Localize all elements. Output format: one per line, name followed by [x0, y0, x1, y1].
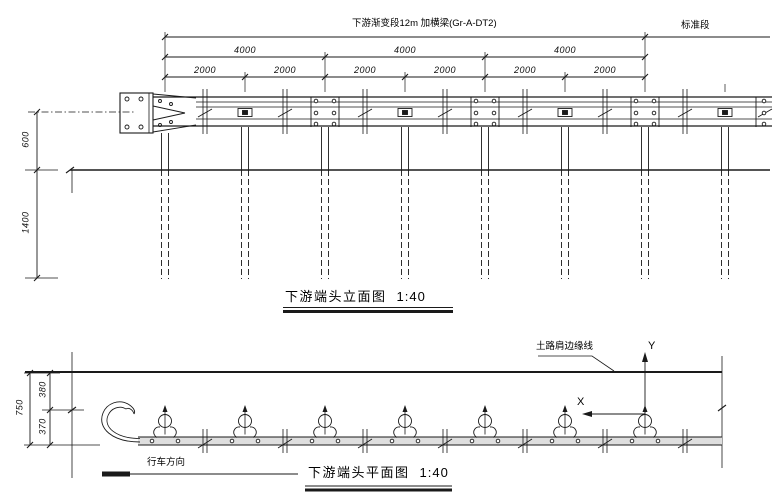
- dim-embed-depth: 1400: [22, 205, 31, 241]
- axis-y-label: Y: [648, 341, 655, 352]
- dim-2000-2: 2000: [274, 66, 296, 75]
- plan-title-underline: [305, 486, 452, 490]
- dim-2000-1: 2000: [194, 66, 216, 75]
- cad-drawing-sheet: 下游渐变段12m 加横梁(Gr-A-DT2) 标准段 4000 4000 400…: [0, 0, 780, 500]
- plan-title-text: 下游端头平面图: [308, 465, 410, 480]
- dim-2000-3: 2000: [354, 66, 376, 75]
- plan-title-scale: 1:40: [420, 465, 449, 480]
- plan-width-dimensions: [24, 370, 100, 448]
- dim-2000-5: 2000: [514, 66, 536, 75]
- terminal-hook-plan: [102, 402, 140, 442]
- dim-2000-6: 2000: [594, 66, 616, 75]
- elevation-title-underline: [283, 308, 453, 312]
- dim-2000-4: 2000: [434, 66, 456, 75]
- axis-y-arrowhead: [642, 352, 648, 362]
- rail-plan-band: [138, 437, 722, 445]
- elevation-view-title: 下游端头立面图1:40: [285, 290, 426, 303]
- posts-elevation: [162, 127, 729, 279]
- standard-section-label: 标准段: [681, 21, 710, 31]
- travel-direction-arrow: [102, 472, 298, 477]
- elevation-view: [25, 32, 772, 312]
- coordinate-axes: [582, 352, 648, 417]
- dim-upper-width: 380: [39, 375, 48, 405]
- dim-lower-width: 370: [39, 412, 48, 442]
- dim-total-width: 750: [16, 393, 25, 423]
- elevation-title-scale: 1:40: [397, 289, 426, 304]
- ground-line: [66, 167, 770, 193]
- shoulder-edge-line: [25, 352, 726, 478]
- dim-4000-1: 4000: [234, 46, 256, 55]
- elevation-title-text: 下游端头立面图: [285, 289, 387, 304]
- axis-x-arrowhead: [582, 411, 592, 417]
- top-section-note: 下游渐变段12m 加横梁(Gr-A-DT2): [352, 19, 497, 29]
- shoulder-edge-label: 土路肩边缘线: [536, 342, 593, 352]
- plan-view-title: 下游端头平面图1:40: [308, 466, 449, 479]
- terminal-end-elevation: [120, 93, 196, 133]
- axis-x-label: X: [577, 397, 584, 408]
- drawing-canvas: [0, 0, 780, 500]
- splice-panels: [311, 97, 766, 127]
- travel-direction-label: 行车方向: [147, 458, 185, 468]
- elevation-dimension-lines: [162, 32, 770, 92]
- post-bolt-plates: [238, 109, 732, 117]
- shoulder-label-leader: [538, 356, 614, 371]
- elevation-height-dimensions: [25, 109, 134, 281]
- dim-4000-3: 4000: [554, 46, 576, 55]
- rail-break-symbols-elevation: [198, 89, 772, 134]
- dim-rail-height: 600: [22, 125, 31, 155]
- dim-4000-2: 4000: [394, 46, 416, 55]
